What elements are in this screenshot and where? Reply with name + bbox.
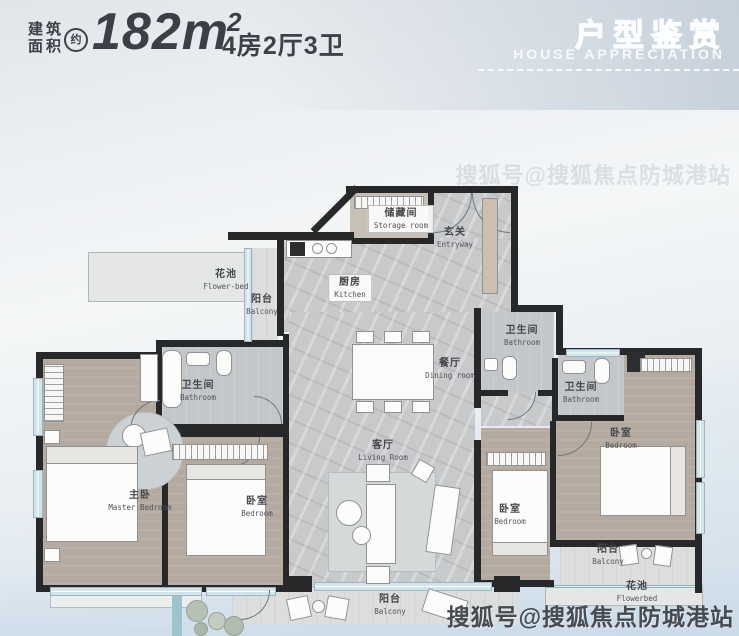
dining-chair — [412, 401, 430, 413]
sink-bowl — [326, 243, 337, 254]
room-label-en: Flower-bed — [203, 282, 248, 291]
room-label-en: Dining room — [425, 371, 475, 380]
window — [566, 349, 620, 357]
window — [33, 378, 43, 436]
room-label-bathroom-left: 卫生间Bathroom — [180, 380, 216, 402]
room-label-living: 客厅Living Room — [358, 440, 408, 462]
wardrobe — [640, 358, 692, 372]
stove — [290, 242, 305, 256]
room-label-cn: 玄关 — [437, 227, 473, 240]
layout-summary: 4房2厅3卫 — [222, 26, 345, 62]
plant — [194, 622, 208, 636]
watermark-faint: 搜狐号@搜狐焦点防城港站 — [456, 158, 731, 190]
room-label-en: Balcony — [374, 607, 406, 616]
wall-segment — [511, 186, 518, 312]
watermark: 搜狐号@搜狐焦点防城港站 — [447, 598, 734, 632]
window — [33, 470, 43, 518]
bed-pillows — [186, 464, 266, 480]
room-label-en: Living Room — [358, 453, 408, 462]
room-label-cn: 厨房 — [334, 277, 366, 290]
dining-chair — [356, 401, 374, 413]
wall-segment — [156, 340, 289, 347]
outdoor-table — [312, 600, 325, 613]
outdoor-chair — [324, 595, 349, 620]
room-label-cn: 餐厅 — [425, 358, 475, 371]
wall-segment — [478, 390, 508, 396]
area-number: 182m — [92, 3, 229, 61]
room-label-dining: 餐厅Dining room — [425, 358, 475, 380]
room-label-bedroom-3: 卧室Bedroom — [605, 428, 637, 450]
room-label-cn: 卫生间 — [504, 325, 540, 338]
nightstand — [44, 430, 60, 444]
room-label-cn: 阳台 — [246, 294, 278, 307]
room-label-en: Bathroom — [563, 395, 599, 404]
room-label-cn: 阳台 — [592, 544, 624, 557]
sink — [562, 360, 586, 374]
room-label-cn: 花池 — [203, 269, 248, 282]
approx-badge: 约 — [64, 28, 88, 52]
banner-title-en: HOUSE APPRECIATION — [513, 46, 725, 62]
wardrobe — [44, 364, 64, 422]
room-label-bathroom-right-upper: 卫生间Bathroom — [504, 325, 540, 347]
outdoor-chair — [286, 595, 312, 621]
room-label-cn: 花池 — [617, 581, 658, 594]
toilet — [216, 350, 232, 376]
wall-corner-block — [286, 576, 312, 592]
room-label-bathroom-right-lower: 卫生间Bathroom — [563, 382, 599, 404]
room-label-cn: 主卧 — [108, 490, 171, 503]
wall-segment — [474, 440, 481, 587]
room-label-cn: 储藏间 — [374, 208, 428, 221]
room-label-cn: 阳台 — [374, 594, 406, 607]
dining-table — [352, 344, 434, 400]
dining-chair — [412, 331, 430, 343]
plant — [186, 600, 208, 622]
room-label-en: Kitchen — [334, 290, 366, 299]
toilet — [502, 356, 517, 380]
flowerbed-edge — [172, 594, 182, 636]
room-label-en: Bedroom — [605, 441, 637, 450]
side-table — [366, 464, 390, 482]
area-prefix-line2: 面积 — [28, 38, 64, 55]
sink — [484, 358, 498, 371]
room-label-en: Bedroom — [241, 509, 273, 518]
room-label-en: Bathroom — [504, 338, 540, 347]
coffee-table — [352, 526, 371, 545]
wall-segment — [552, 358, 558, 420]
dining-chair — [384, 401, 402, 413]
area-value: 182m2 — [92, 2, 242, 62]
toilet — [594, 358, 610, 384]
room-label-entryway: 玄关Entryway — [437, 227, 473, 249]
wardrobe — [486, 452, 546, 466]
sink-bowl — [312, 243, 323, 254]
room-label-cn: 客厅 — [358, 440, 408, 453]
room-label-cn: 卧室 — [241, 496, 273, 509]
window — [696, 482, 705, 534]
room-label-master-bedroom: 主卧Master Bedroom — [108, 490, 171, 512]
coffee-table — [336, 500, 362, 526]
room-label-balcony-right: 阳台Balcony — [592, 544, 624, 566]
outdoor-chair — [653, 545, 674, 567]
dining-chair — [356, 331, 374, 343]
room-label-cn: 卫生间 — [180, 380, 216, 393]
room-label-en: Bathroom — [180, 393, 216, 402]
room-label-en: Bedroom — [494, 517, 526, 526]
room-label-bedroom-4: 卧室Bedroom — [494, 504, 526, 526]
bed-pillows — [46, 446, 138, 464]
outdoor-table — [641, 548, 652, 559]
room-label-balcony-left: 阳台Balcony — [246, 294, 278, 316]
bathroom3-floor — [481, 312, 554, 392]
dining-chair — [384, 331, 402, 343]
bed-pillows — [670, 446, 686, 516]
bed-pillows — [492, 542, 548, 556]
room-label-cn: 卧室 — [605, 428, 637, 441]
banner-dashed-divider — [478, 69, 739, 71]
room-label-bedroom-2: 卧室Bedroom — [241, 496, 273, 518]
room-label-en: Storage room — [374, 221, 428, 230]
side-table — [366, 566, 390, 584]
room-label-balcony-bottom: 阳台Balcony — [374, 594, 406, 616]
floorplan-page: 建筑面积 约 182m2 4房2厅3卫 户型鉴赏 HOUSE APPRECIAT… — [0, 0, 739, 636]
wall-segment — [283, 446, 289, 588]
wall-segment — [277, 240, 284, 336]
wall-segment — [552, 415, 624, 421]
room-label-en: Balcony — [592, 557, 624, 566]
plant — [224, 616, 244, 636]
room-label-kitchen: 厨房Kitchen — [328, 274, 372, 302]
room-label-en: Master Bedroom — [108, 503, 171, 512]
nightstand — [44, 548, 60, 562]
bay-window — [50, 587, 202, 596]
sink — [186, 352, 210, 366]
wall-segment — [346, 238, 434, 244]
wall-segment — [228, 232, 354, 240]
sofa — [366, 484, 396, 564]
room-label-en: Entryway — [437, 240, 473, 249]
room-label-cn: 卧室 — [494, 504, 526, 517]
area-prefix-line1: 建筑 — [28, 21, 64, 38]
room-label-storage: 储藏间Storage room — [368, 205, 434, 233]
entry-cabinet — [482, 198, 498, 294]
area-prefix-label: 建筑面积 — [28, 21, 64, 55]
wardrobe — [172, 444, 268, 460]
sliding-door-window — [314, 582, 492, 591]
wall-segment — [550, 421, 556, 545]
window — [696, 420, 705, 478]
room-label-flowerbed-left: 花池Flower-bed — [203, 269, 248, 291]
cabinet — [140, 354, 158, 402]
room-label-cn: 卫生间 — [563, 382, 599, 395]
room-label-en: Balcony — [246, 307, 278, 316]
